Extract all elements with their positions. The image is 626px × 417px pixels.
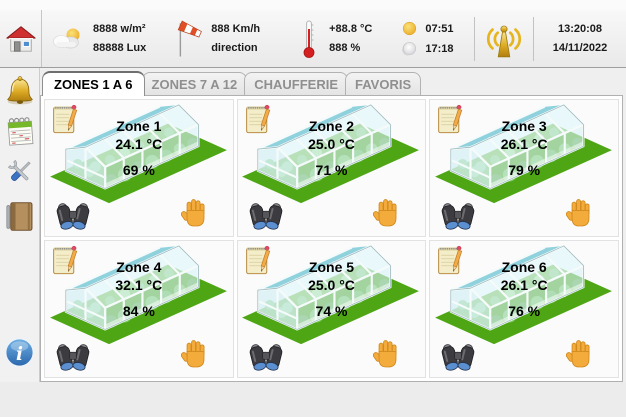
binoculars-icon — [438, 201, 478, 232]
calendar-icon — [4, 116, 36, 147]
hand-icon — [373, 198, 399, 228]
zone-notes-button[interactable] — [244, 244, 272, 277]
bottom-strip — [0, 382, 626, 417]
zones-panel: Zone 1 24.1 °C 69 % — [40, 95, 623, 382]
settings-button[interactable] — [4, 156, 36, 188]
zone-manual-button[interactable] — [181, 339, 207, 369]
sun-cloud-icon — [50, 26, 84, 52]
zone-view-button[interactable] — [53, 342, 93, 373]
binoculars-icon — [438, 342, 478, 373]
notepad-icon — [51, 244, 79, 277]
moon-icon — [402, 41, 417, 56]
zone-notes-button[interactable] — [436, 244, 464, 277]
zones-grid: Zone 1 24.1 °C 69 % — [41, 96, 622, 381]
notepad-icon — [244, 244, 272, 277]
sidebar — [0, 68, 40, 382]
info-icon — [4, 337, 35, 368]
zone-manual-button[interactable] — [373, 339, 399, 369]
zone-view-button[interactable] — [438, 201, 478, 232]
zone-card-5: Zone 5 25.0 °C 74 % — [237, 240, 427, 378]
outside-humidity: 888 % — [329, 42, 372, 54]
antenna-button[interactable] — [475, 18, 533, 60]
zone-notes-button[interactable] — [244, 103, 272, 136]
wind-direction-label: direction — [211, 42, 260, 54]
clock: 13:20:08 14/11/2022 — [534, 23, 626, 54]
calendar-button[interactable] — [4, 116, 36, 147]
info-button[interactable] — [4, 337, 35, 368]
windsock-icon — [176, 18, 204, 60]
sun-icon — [402, 21, 417, 36]
tab-chaufferie[interactable]: CHAUFFERIE — [244, 72, 348, 95]
binoculars-icon — [53, 201, 93, 232]
zone-manual-button[interactable] — [181, 198, 207, 228]
zone-view-button[interactable] — [246, 342, 286, 373]
hand-icon — [181, 339, 207, 369]
house-icon — [4, 24, 38, 54]
main-area: ZONES 1 A 6 ZONES 7 A 12 CHAUFFERIE FAVO… — [0, 68, 626, 382]
zone-card-6: Zone 6 26.1 °C 76 % — [429, 240, 619, 378]
radiation-readout: 8888 w/m² 88888 Lux — [50, 23, 146, 54]
hand-icon — [566, 198, 592, 228]
zone-manual-button[interactable] — [566, 339, 592, 369]
binoculars-icon — [53, 342, 93, 373]
zone-view-button[interactable] — [438, 342, 478, 373]
binoculars-icon — [246, 342, 286, 373]
notepad-icon — [51, 103, 79, 136]
binoculars-icon — [246, 201, 286, 232]
lux-value: 88888 Lux — [93, 42, 146, 54]
hand-icon — [566, 339, 592, 369]
notebook-icon — [4, 200, 36, 233]
wind-speed: 888 Km/h — [211, 23, 260, 35]
thermometer-icon — [302, 18, 316, 60]
zone-view-button[interactable] — [246, 201, 286, 232]
top-strip — [0, 0, 626, 10]
zone-notes-button[interactable] — [51, 244, 79, 277]
alarms-button[interactable] — [4, 75, 36, 106]
header-bar: 8888 w/m² 88888 Lux 888 Km/h direction +… — [0, 10, 626, 68]
notepad-icon — [436, 244, 464, 277]
hand-icon — [181, 198, 207, 228]
tools-icon — [4, 156, 36, 188]
home-button[interactable] — [0, 10, 42, 67]
outside-temperature: +88.8 °C — [329, 23, 372, 35]
sunrise-time: 07:51 — [425, 23, 453, 35]
tab-zones-1-6[interactable]: ZONES 1 A 6 — [42, 71, 145, 96]
logbook-button[interactable] — [4, 200, 36, 233]
antenna-icon — [481, 18, 527, 60]
zone-manual-button[interactable] — [373, 198, 399, 228]
zone-card-3: Zone 3 26.1 °C 79 % — [429, 99, 619, 237]
sun-times: 07:51 17:18 — [402, 21, 453, 56]
zone-manual-button[interactable] — [566, 198, 592, 228]
tab-zones-7-12[interactable]: ZONES 7 A 12 — [142, 72, 248, 95]
zone-notes-button[interactable] — [51, 103, 79, 136]
temperature-readout: +88.8 °C 888 % — [302, 18, 372, 60]
content-area: ZONES 1 A 6 ZONES 7 A 12 CHAUFFERIE FAVO… — [40, 68, 626, 382]
bell-icon — [4, 75, 36, 106]
radiation-value: 8888 w/m² — [93, 23, 146, 35]
zone-card-2: Zone 2 25.0 °C 71 % — [237, 99, 427, 237]
zone-view-button[interactable] — [53, 201, 93, 232]
hand-icon — [373, 339, 399, 369]
zone-notes-button[interactable] — [436, 103, 464, 136]
tab-favoris[interactable]: FAVORIS — [345, 72, 421, 95]
notepad-icon — [244, 103, 272, 136]
clock-date: 14/11/2022 — [553, 42, 607, 54]
sunset-time: 17:18 — [425, 43, 453, 55]
zone-card-4: Zone 4 32.1 °C 84 % — [44, 240, 234, 378]
tab-bar: ZONES 1 A 6 ZONES 7 A 12 CHAUFFERIE FAVO… — [40, 68, 623, 95]
zone-card-1: Zone 1 24.1 °C 69 % — [44, 99, 234, 237]
wind-readout: 888 Km/h direction — [176, 18, 260, 60]
clock-time: 13:20:08 — [558, 23, 602, 35]
notepad-icon — [436, 103, 464, 136]
